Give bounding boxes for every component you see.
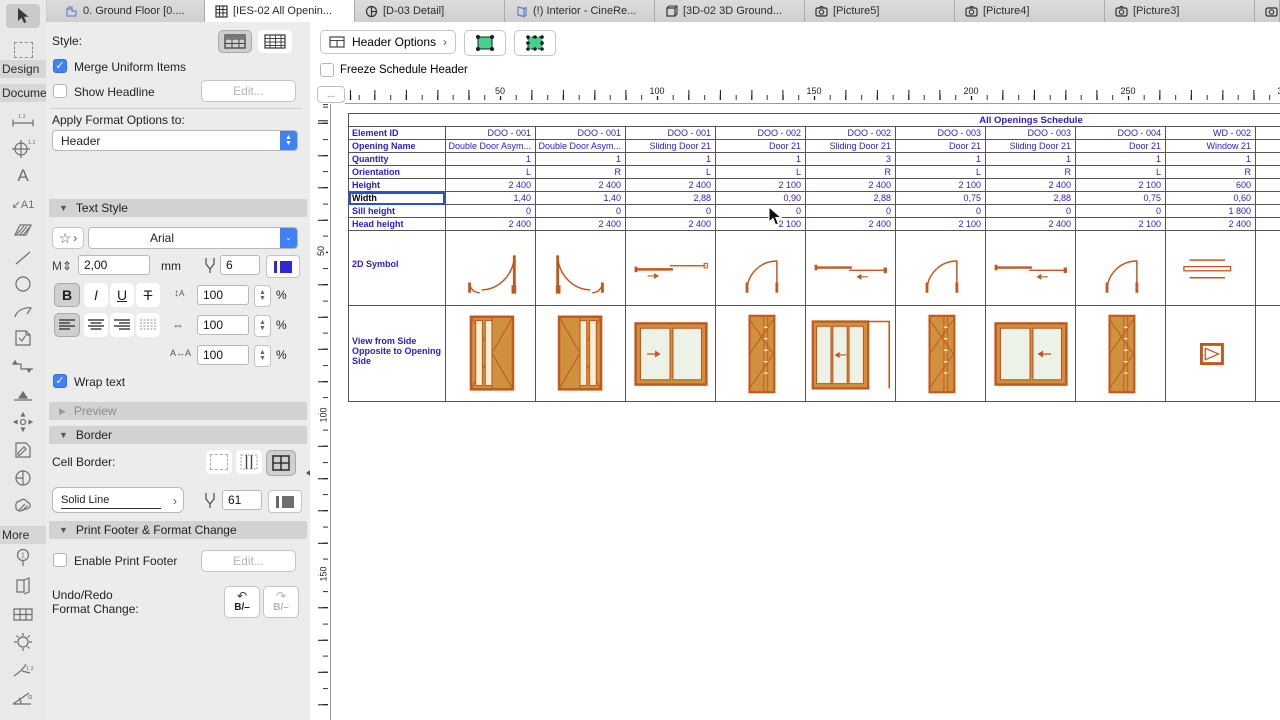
schedule-cell[interactable]: 2 100 <box>896 218 985 231</box>
polyline-tool-icon[interactable] <box>6 300 40 324</box>
style-merged-button[interactable] <box>218 30 252 53</box>
schedule-cell[interactable]: 1 800 <box>1166 205 1255 218</box>
toolbox-group-more[interactable]: More <box>0 526 46 544</box>
camera-path-tool-icon[interactable]: 1 <box>6 546 40 570</box>
interior-elevation-tool-icon[interactable] <box>6 410 40 434</box>
schedule-cell[interactable]: L <box>446 166 535 179</box>
percent-label: % <box>276 348 287 362</box>
svg-text:1: 1 <box>21 553 25 560</box>
schedule-cell[interactable]: Door 21 <box>716 140 805 153</box>
style-uniform-button[interactable] <box>258 30 292 53</box>
schedule-cell[interactable]: 2 400 <box>626 179 715 192</box>
schedule-cell[interactable]: 0,90 <box>716 192 805 205</box>
line-tool-icon[interactable] <box>6 246 40 270</box>
view-slide-glass-r-icon[interactable] <box>626 306 715 402</box>
schedule-column-5: DOO - 002Sliding Door 213R2 4002,8802 40… <box>806 127 896 402</box>
tab-picture5[interactable]: [Picture5] <box>805 0 955 22</box>
schedule-cell[interactable]: 2 400 <box>806 218 895 231</box>
font-size-field[interactable] <box>78 255 150 275</box>
select-stepper-icon: ▲▼ <box>280 131 297 150</box>
row-label-head-height[interactable]: Head height <box>349 218 445 231</box>
camera-icon <box>815 5 828 18</box>
border-vertical-button[interactable] <box>236 450 262 474</box>
schedule-cell[interactable]: L <box>716 166 805 179</box>
view-slide-glass-l-icon[interactable] <box>986 306 1075 402</box>
schedule-column-4: DOO - 002Door 211L2 1000,9002 100 <box>716 127 806 402</box>
percent-label: % <box>276 288 287 302</box>
tab-label: [D-03 Detail] <box>383 5 444 17</box>
border-all-button[interactable] <box>266 450 296 476</box>
line-preview <box>61 508 161 509</box>
schedule-cell[interactable]: Sliding Door 21 <box>806 140 895 153</box>
redo-arrow-icon: ↷ <box>276 590 286 602</box>
schedule-column-6: DOO - 003Door 211L2 1000,7502 100 <box>896 127 986 402</box>
schedule-column-1: DOO - 001Double Door Asym...1L2 4001,400… <box>446 127 536 402</box>
width-factor-field[interactable] <box>197 315 249 335</box>
schedule-cell[interactable]: 1 <box>716 153 805 166</box>
schedule-cell[interactable]: 0 <box>896 205 985 218</box>
schedule-cell[interactable]: Double Door Asym... <box>536 140 625 153</box>
row-label-sill-height[interactable]: Sill height <box>349 205 445 218</box>
patch-tool-icon[interactable] <box>6 494 40 518</box>
row-label-opening-name[interactable]: Opening Name <box>349 140 445 153</box>
schedule-cell[interactable]: L <box>626 166 715 179</box>
text-height-icon: M⇕ <box>52 259 72 273</box>
schedule-cell[interactable]: 0 <box>626 205 715 218</box>
3d-view-icon <box>665 5 678 18</box>
view-panel-door-icon[interactable] <box>896 306 985 402</box>
collapse-triangle-icon: ▼ <box>59 430 68 440</box>
schedule-cell[interactable]: R <box>536 166 625 179</box>
schedule-cell[interactable]: 1 <box>896 153 985 166</box>
schedule-cell[interactable]: 1 <box>446 153 535 166</box>
schedule-cell[interactable]: 600 <box>1166 179 1255 192</box>
border-pen-field[interactable] <box>222 490 262 510</box>
camera-icon <box>1265 5 1278 18</box>
detail-icon <box>365 5 378 18</box>
elevation-tool-icon[interactable] <box>6 384 40 408</box>
favorites-button[interactable]: ☆› <box>52 227 84 249</box>
2d-symbol-swing-single-icon[interactable] <box>1076 231 1165 306</box>
schedule-column-2: DOO - 001Double Door Asym...1R2 4001,400… <box>536 127 626 402</box>
circle-tool-icon[interactable] <box>6 272 40 296</box>
marquee-tool-icon[interactable] <box>6 38 40 62</box>
underline-button[interactable]: U <box>110 283 134 307</box>
toolbox-group-design[interactable]: Design <box>0 60 46 78</box>
tab-interior-cinerender[interactable]: (!) Interior - CineRe... <box>505 0 655 22</box>
undo-redo-label-line1: Undo/Redo <box>52 588 113 602</box>
svg-text:1.2: 1.2 <box>28 140 35 146</box>
radial-dimension-tool-icon[interactable]: 1 2 <box>6 658 40 682</box>
row-label-width[interactable]: Width <box>349 192 445 205</box>
schedule-cell[interactable]: 2 400 <box>986 218 1075 231</box>
schedule-cell[interactable]: R <box>986 166 1075 179</box>
align-justify-button[interactable] <box>136 313 160 337</box>
schedule-view: Header Options › Freeze Schedule Header … <box>310 22 1280 720</box>
schedule-cell[interactable]: WD - 002 <box>1166 127 1255 140</box>
merge-uniform-label: Merge Uniform Items <box>74 60 186 74</box>
schedule-cell[interactable]: R <box>806 166 895 179</box>
tab-ground-floor[interactable]: 0. Ground Floor [0.... <box>55 0 205 22</box>
detail-tool-icon[interactable] <box>6 466 40 490</box>
enable-print-footer-checkbox[interactable] <box>53 553 67 567</box>
align-center-button[interactable] <box>84 313 108 337</box>
schedule-cell[interactable]: 1 <box>986 153 1075 166</box>
schedule-cell[interactable]: 2 100 <box>1076 218 1165 231</box>
schedule-cell[interactable]: 1 <box>626 153 715 166</box>
row-label-view-from-side[interactable]: View from Side Opposite to Opening Side <box>349 306 445 402</box>
text-tool-icon[interactable]: A <box>6 164 40 188</box>
header-options-icon <box>329 36 345 48</box>
line-type-select[interactable]: Solid Line › <box>52 487 184 513</box>
border-none-button[interactable] <box>206 450 232 474</box>
schedule-cell[interactable]: L <box>1076 166 1165 179</box>
schedule-icon <box>215 5 228 18</box>
schedule-column-partial <box>1256 127 1280 402</box>
view-door-glass-a-icon[interactable] <box>446 306 535 402</box>
schedule-cell[interactable]: 2 400 <box>1166 218 1255 231</box>
tab-picture4[interactable]: [Picture4] <box>955 0 1105 22</box>
line-spacing-stepper[interactable]: ▲▼ <box>254 285 271 307</box>
camera-icon <box>965 5 978 18</box>
schedule-title: All Openings Schedule <box>979 115 1082 126</box>
show-headline-label: Show Headline <box>74 85 155 99</box>
ruler-label: 100 <box>319 405 329 424</box>
schedule-cell[interactable]: 0 <box>536 205 625 218</box>
ruler-label: 300 <box>1274 86 1280 96</box>
tab-detail[interactable]: [D-03 Detail] <box>355 0 505 22</box>
schedule-cell[interactable]: DOO - 002 <box>806 127 895 140</box>
edit-all-handles-button[interactable] <box>514 30 556 56</box>
schedule-cell[interactable]: 2 400 <box>446 179 535 192</box>
schedule-cell[interactable]: 1 <box>1076 153 1165 166</box>
strikethrough-button[interactable]: T <box>136 283 160 307</box>
ruler-label: 150 <box>803 86 824 96</box>
preview-section-header[interactable]: ▶Preview <box>49 402 307 420</box>
worksheet-tool-icon[interactable] <box>6 438 40 462</box>
tab-label: [Picture5] <box>833 5 879 17</box>
schedule-cell[interactable]: 2,88 <box>626 192 715 205</box>
tab-label: [Picture4] <box>983 5 1029 17</box>
2d-symbol-swing-double-b-icon[interactable] <box>536 231 625 306</box>
width-factor-icon: ⇔ <box>172 318 184 332</box>
ruler-corner-button[interactable]: ... <box>317 86 345 103</box>
line-spacing-icon: ↕A <box>174 288 184 299</box>
headline-edit-button[interactable]: Edit... <box>201 80 296 102</box>
font-select[interactable]: Arial ⌄ <box>88 227 298 249</box>
schedule-cell[interactable]: 0 <box>986 205 1075 218</box>
tab-partial[interactable] <box>1255 0 1280 22</box>
tab-label: [IES-02 All Openin... <box>233 5 332 17</box>
schedule-cell[interactable]: DOO - 001 <box>446 127 535 140</box>
schedule-cell[interactable]: 0,75 <box>896 192 985 205</box>
schedule-cell[interactable]: L <box>896 166 985 179</box>
schedule-cell[interactable]: DOO - 004 <box>1076 127 1165 140</box>
tab-picture3[interactable]: [Picture3] <box>1105 0 1255 22</box>
collapse-triangle-icon: ▼ <box>59 203 68 213</box>
schedule-cell[interactable]: Double Door Asym... <box>446 140 535 153</box>
align-left-button[interactable] <box>54 313 80 337</box>
ruler-label: 200 <box>960 86 981 96</box>
schedule-cell[interactable]: 2 100 <box>896 179 985 192</box>
ruler-label: 100 <box>646 86 667 96</box>
pen-icon <box>204 255 216 275</box>
schedule-column-8: DOO - 004Door 211L2 1000,7502 100 <box>1076 127 1166 402</box>
row-label-element-id[interactable]: Element ID <box>349 127 445 140</box>
schedule-cell[interactable] <box>1256 127 1280 140</box>
floor-plan-icon <box>65 5 78 18</box>
svg-text:α: α <box>28 694 32 701</box>
lamp-tool-icon[interactable] <box>6 630 40 654</box>
schedule-cell[interactable]: 2 100 <box>716 179 805 192</box>
schedule-label-column: Element IDOpening NameQuantityOrientatio… <box>349 127 446 402</box>
schedule-cell[interactable]: DOO - 003 <box>986 127 1075 140</box>
svg-text:1 2: 1 2 <box>26 666 34 672</box>
schedule-format-panel: Style: ✓ Merge Uniform Items Show Headli… <box>46 22 311 720</box>
apply-format-label: Apply Format Options to: <box>52 113 185 127</box>
schedule-cell[interactable]: 2 400 <box>446 218 535 231</box>
font-size-unit: mm <box>161 259 181 273</box>
schedule-column-7: DOO - 003Sliding Door 211R2 4002,8802 40… <box>986 127 1076 402</box>
italic-button[interactable]: I <box>84 283 108 307</box>
camera-icon <box>1115 5 1128 18</box>
tab-label: [Picture3] <box>1133 5 1179 17</box>
font-color-swatch[interactable] <box>266 255 300 278</box>
schedule-cell[interactable]: 2,88 <box>806 192 895 205</box>
schedule-cell[interactable] <box>1256 218 1280 231</box>
schedule-cell[interactable]: 2 400 <box>626 218 715 231</box>
schedule-cell[interactable] <box>1256 153 1280 166</box>
tab-label: (!) Interior - CineRe... <box>533 5 636 17</box>
openings-schedule-table: All Openings Schedule Element IDOpening … <box>348 113 1280 402</box>
level-dimension-tool-icon[interactable]: 1.2 <box>6 136 40 160</box>
schedule-cell[interactable] <box>1256 140 1280 153</box>
view-panel-door-icon[interactable] <box>716 306 805 402</box>
schedule-cell[interactable]: Sliding Door 21 <box>626 140 715 153</box>
schedule-cell[interactable]: 2,88 <box>986 192 1075 205</box>
row-label-2d-symbol[interactable]: 2D Symbol <box>349 231 445 306</box>
schedule-cell[interactable]: 2 100 <box>1076 179 1165 192</box>
chevron-icon: › <box>443 35 447 49</box>
schedule-cell[interactable]: 2 400 <box>536 179 625 192</box>
tracking-stepper[interactable]: ▲▼ <box>254 345 271 367</box>
schedule-cell[interactable]: 2 400 <box>536 218 625 231</box>
tracking-icon: A↔A <box>170 348 191 358</box>
schedule-title-row[interactable]: All Openings Schedule <box>349 114 1280 127</box>
view-panel-door-icon[interactable] <box>1076 306 1165 402</box>
schedule-cell[interactable]: 2 400 <box>986 179 1075 192</box>
horizontal-ruler[interactable]: 50 100 150 200 250 300 <box>345 84 1280 104</box>
tab-label: [3D-02 3D Ground... <box>683 5 782 17</box>
2d-symbol-swing-single-icon[interactable] <box>896 231 985 306</box>
percent-label: % <box>276 318 287 332</box>
header-options-button[interactable]: Header Options › <box>320 30 456 54</box>
select-chevron-icon: ⌄ <box>280 228 297 248</box>
print-footer-edit-button[interactable]: Edit... <box>201 550 296 572</box>
door-panel-tool-icon[interactable] <box>6 574 40 598</box>
schedule-cell[interactable]: 1,40 <box>536 192 625 205</box>
schedule-cell[interactable] <box>1256 205 1280 218</box>
divider <box>50 108 302 109</box>
2d-symbol-swing-double-a-icon[interactable] <box>446 231 535 306</box>
2d-symbol-slide-r-icon[interactable] <box>626 231 715 306</box>
schedule-cell[interactable]: Sliding Door 21 <box>986 140 1075 153</box>
vertical-ruler[interactable]: 50 100 150 <box>313 104 331 720</box>
schedule-cell[interactable] <box>1256 192 1280 205</box>
schedule-cell[interactable]: R <box>1166 166 1255 179</box>
font-pen-field[interactable] <box>220 255 260 275</box>
svg-text:1.2: 1.2 <box>18 114 26 120</box>
align-right-button[interactable] <box>110 313 134 337</box>
ruler-label: 150 <box>319 564 329 583</box>
schedule-cell[interactable]: 0,60 <box>1166 192 1255 205</box>
tab-all-openings-schedule[interactable]: [IES-02 All Openin... <box>205 0 355 22</box>
interior-elevation-icon <box>515 5 528 18</box>
row-label-height[interactable]: Height <box>349 179 445 192</box>
border-color-swatch[interactable] <box>268 490 302 513</box>
selection-handles-icon <box>524 34 546 52</box>
tab-bar: 0. Ground Floor [0.... [IES-02 All Openi… <box>0 0 1280 23</box>
undo-arrow-icon: ↶ <box>237 590 247 602</box>
ruler-label: 50 <box>492 86 508 96</box>
section-tool-icon[interactable] <box>6 354 40 378</box>
schedule-cell[interactable]: DOO - 001 <box>626 127 715 140</box>
text-style-section-header[interactable]: ▼Text Style <box>49 199 307 217</box>
curtain-wall-tool-icon[interactable] <box>6 602 40 626</box>
selection-square-icon <box>474 34 496 52</box>
schedule-cell[interactable]: Door 21 <box>1076 140 1165 153</box>
schedule-cell[interactable]: DOO - 001 <box>536 127 625 140</box>
row-label-quantity[interactable]: Quantity <box>349 153 445 166</box>
bold-button[interactable]: B <box>54 283 80 307</box>
schedule-column-3: DOO - 001Sliding Door 211L2 4002,8802 40… <box>626 127 716 402</box>
2d-symbol-window-sym-icon[interactable] <box>1166 231 1255 306</box>
schedule-cell[interactable]: DOO - 003 <box>896 127 985 140</box>
schedule-cell[interactable]: DOO - 002 <box>716 127 805 140</box>
tab-label: 0. Ground Floor [0.... <box>83 5 185 17</box>
fill-tool-icon[interactable] <box>6 218 40 242</box>
collapsed-triangle-icon: ▶ <box>59 406 66 417</box>
chevron-icon: › <box>173 494 177 508</box>
toolbox-group-document[interactable]: Docume <box>0 84 46 102</box>
apply-format-select[interactable]: Header ▲▼ <box>52 130 298 151</box>
edit-boundaries-button[interactable] <box>464 30 506 56</box>
enable-print-footer-label: Enable Print Footer <box>74 554 177 568</box>
wrap-text-label: Wrap text <box>74 375 125 389</box>
line-spacing-field[interactable] <box>197 285 249 305</box>
schedule-cell[interactable]: 1 <box>1166 153 1255 166</box>
redo-format-button[interactable]: ↷B/– <box>263 586 299 618</box>
border-section-header[interactable]: ▼Border <box>49 426 307 444</box>
schedule-cell[interactable]: 0 <box>1076 205 1165 218</box>
2d-symbol-swing-single-icon[interactable] <box>716 231 805 306</box>
collapse-triangle-icon: ▼ <box>59 525 68 535</box>
schedule-cell[interactable]: Window 21 <box>1166 140 1255 153</box>
pen-icon <box>204 490 216 510</box>
ruler-label: 50 <box>316 244 326 258</box>
tool-palette: Design Docume 1.2 1.2 A ↙A1 More 1 1 2 α <box>0 0 47 720</box>
schedule-cell[interactable]: 3 <box>806 153 895 166</box>
ruler-label: 250 <box>1117 86 1138 96</box>
2d-symbol-cell[interactable] <box>1256 231 1280 306</box>
schedule-cell[interactable]: 2 100 <box>716 218 805 231</box>
schedule-cell[interactable] <box>1256 179 1280 192</box>
view-cell[interactable] <box>1256 306 1280 402</box>
undo-format-button[interactable]: ↶B/– <box>224 586 260 618</box>
tab-3d-ground[interactable]: [3D-02 3D Ground... <box>655 0 805 22</box>
schedule-cell[interactable]: 0 <box>446 205 535 218</box>
wrap-text-checkbox[interactable]: ✓ <box>53 374 67 388</box>
schedule-cell[interactable]: 1,40 <box>446 192 535 205</box>
schedule-cell[interactable]: 2 400 <box>806 179 895 192</box>
print-footer-section-header[interactable]: ▼Print Footer & Format Change <box>49 521 307 539</box>
undo-redo-label-line2: Format Change: <box>52 602 139 616</box>
schedule-cell[interactable]: 0,75 <box>1076 192 1165 205</box>
2d-symbol-slide-l-icon[interactable] <box>806 231 895 306</box>
drawing-tool-icon[interactable] <box>6 326 40 350</box>
row-label-orientation[interactable]: Orientation <box>349 166 445 179</box>
label-tool-icon[interactable]: ↙A1 <box>6 192 40 216</box>
schedule-cell[interactable]: 0 <box>806 205 895 218</box>
angle-dimension-tool-icon[interactable]: α <box>6 686 40 710</box>
schedule-cell[interactable] <box>1256 166 1280 179</box>
schedule-column-9: WD - 002Window 211R6000,601 8002 400 <box>1166 127 1256 402</box>
merge-uniform-checkbox[interactable]: ✓ <box>53 59 67 73</box>
cell-border-label: Cell Border: <box>52 455 115 469</box>
2d-symbol-slide-l-icon[interactable] <box>986 231 1075 306</box>
schedule-cell[interactable]: 1 <box>536 153 625 166</box>
view-door-glass-b-icon[interactable] <box>536 306 625 402</box>
freeze-header-label: Freeze Schedule Header <box>340 64 468 76</box>
dimension-tool-icon[interactable]: 1.2 <box>6 108 40 132</box>
tracking-field[interactable] <box>197 345 249 365</box>
schedule-cell[interactable]: Door 21 <box>896 140 985 153</box>
freeze-header-checkbox[interactable] <box>320 63 334 77</box>
show-headline-checkbox[interactable] <box>53 84 67 98</box>
view-small-window-icon[interactable] <box>1166 306 1255 402</box>
arrow-tool-icon[interactable] <box>6 4 40 28</box>
view-slide-pocket-icon[interactable] <box>806 306 895 402</box>
mouse-cursor <box>768 206 783 227</box>
style-label: Style: <box>52 34 82 48</box>
schedule-cell[interactable]: 0 <box>716 205 805 218</box>
width-factor-stepper[interactable]: ▲▼ <box>254 315 271 337</box>
